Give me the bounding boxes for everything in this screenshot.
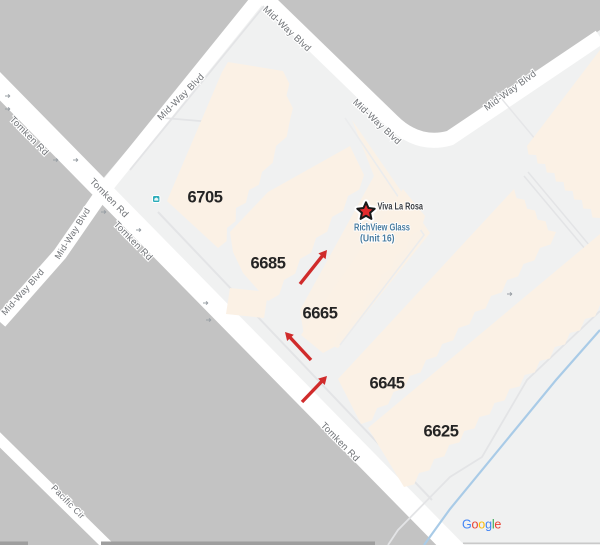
svg-text:RichView Glass: RichView Glass — [354, 223, 410, 234]
svg-text:6665: 6665 — [302, 305, 337, 323]
svg-text:6645: 6645 — [369, 375, 404, 393]
svg-text:6625: 6625 — [423, 423, 458, 441]
svg-text:Viva La Rosa: Viva La Rosa — [378, 202, 424, 213]
svg-text:6705: 6705 — [187, 189, 222, 207]
svg-text:6685: 6685 — [250, 255, 285, 273]
svg-text:(Unit 16): (Unit 16) — [360, 234, 395, 245]
svg-text:Google: Google — [462, 518, 501, 532]
